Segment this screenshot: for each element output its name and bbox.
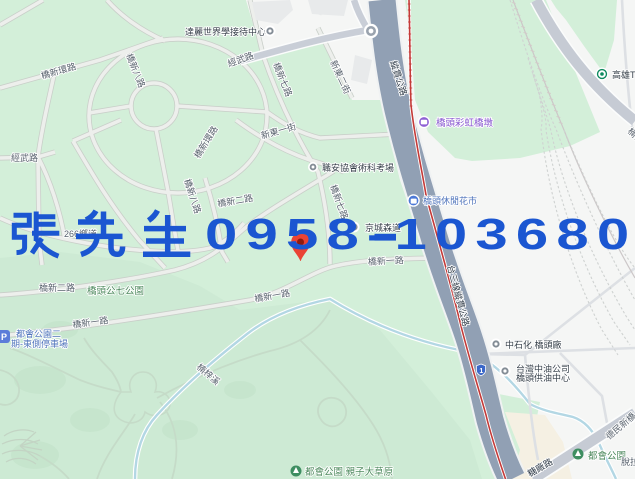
svg-text:脫拉: 脫拉	[621, 456, 635, 467]
svg-text:橋頭彩虹橋墩: 橋頭彩虹橋墩	[436, 117, 494, 129]
svg-text:都會公園 親子大草原: 都會公園 親子大草原	[305, 466, 393, 478]
svg-text:高雄T: 高雄T	[612, 69, 635, 80]
svg-text:1: 1	[479, 368, 483, 375]
svg-text:職安協會術科考場: 職安協會術科考場	[322, 162, 394, 173]
svg-text:P: P	[1, 332, 7, 342]
svg-text:0958-103680: 0958-103680	[205, 209, 635, 259]
svg-text:橋新二路: 橋新二路	[39, 282, 75, 293]
svg-text:達麗世界學接待中心: 達麗世界學接待中心	[185, 26, 266, 37]
svg-text:期-東側停車場: 期-東側停車場	[11, 338, 68, 349]
svg-text:經武路: 經武路	[11, 152, 38, 163]
svg-text:都會公園二: 都會公園二	[16, 328, 61, 339]
svg-text:中石化 橋頭廠: 中石化 橋頭廠	[505, 339, 562, 350]
svg-text:橋頭休閒花市: 橋頭休閒花市	[423, 195, 477, 206]
svg-text:橋頭供油中心: 橋頭供油中心	[516, 372, 570, 383]
svg-text:橋頭公七公園: 橋頭公七公園	[87, 285, 144, 297]
